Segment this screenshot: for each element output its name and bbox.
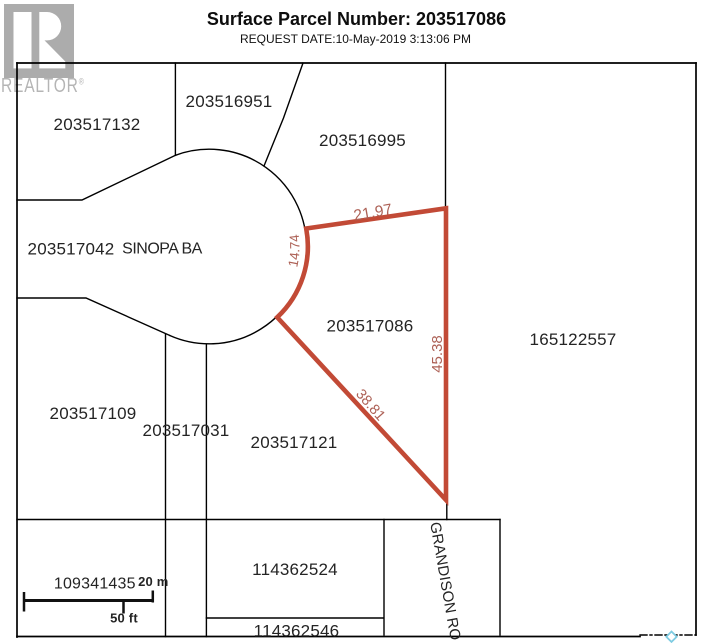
svg-text:45.38: 45.38 xyxy=(429,335,446,373)
svg-text:203517109: 203517109 xyxy=(50,404,137,423)
svg-text:203516995: 203516995 xyxy=(319,131,406,150)
svg-text:203517086: 203517086 xyxy=(327,317,414,336)
svg-text:GRANDISON RO: GRANDISON RO xyxy=(426,521,464,642)
svg-text:203517031: 203517031 xyxy=(143,421,230,440)
svg-text:20 m: 20 m xyxy=(138,574,168,589)
svg-text:165122557: 165122557 xyxy=(530,330,617,349)
svg-text:SINOPA BA: SINOPA BA xyxy=(122,241,203,258)
svg-text:114362546: 114362546 xyxy=(254,622,340,641)
svg-text:114362524: 114362524 xyxy=(252,560,338,579)
svg-text:21.97: 21.97 xyxy=(352,201,393,224)
svg-text:203517132: 203517132 xyxy=(54,115,141,134)
svg-text:203517121: 203517121 xyxy=(251,433,338,452)
svg-text:109341435: 109341435 xyxy=(54,576,136,593)
svg-text:203516951: 203516951 xyxy=(186,92,273,111)
svg-text:14.74: 14.74 xyxy=(285,233,302,268)
svg-text:203517042: 203517042 xyxy=(28,240,115,259)
